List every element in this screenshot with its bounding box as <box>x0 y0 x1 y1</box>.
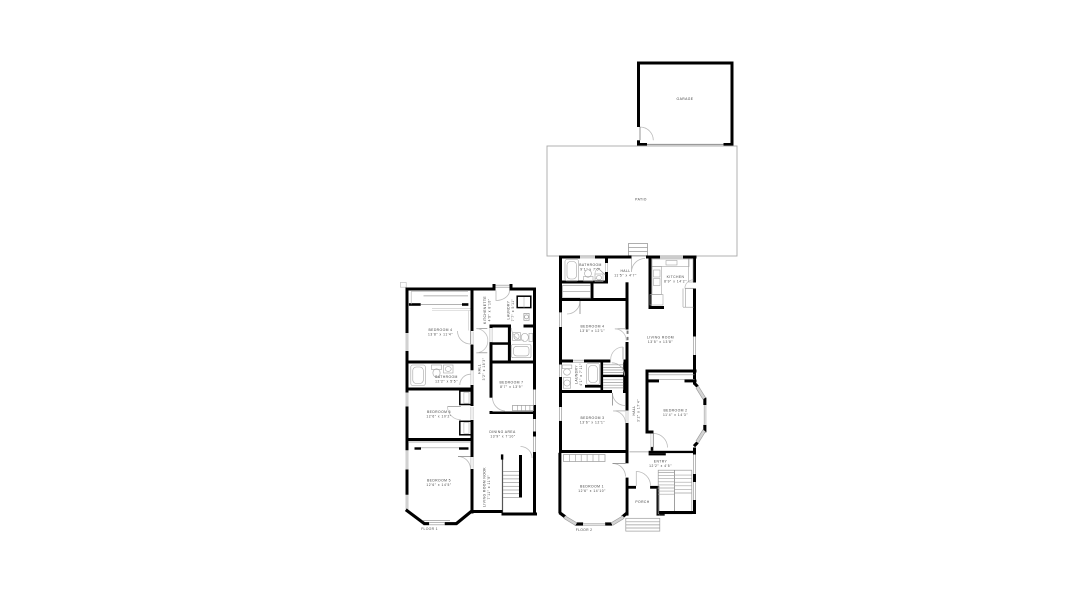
svg-text:BEDROOM 3: BEDROOM 3 <box>581 416 605 420</box>
svg-text:DINING AREA: DINING AREA <box>489 430 516 434</box>
svg-text:FLOOR 2: FLOOR 2 <box>576 528 593 532</box>
svg-text:BATHROOM: BATHROOM <box>579 263 602 267</box>
svg-text:12'6" x 14'10": 12'6" x 14'10" <box>578 489 606 493</box>
svg-text:8'9" x 14'2": 8'9" x 14'2" <box>664 280 687 284</box>
svg-text:13'8" x 11'4": 13'8" x 11'4" <box>428 333 453 337</box>
svg-text:BEDROOM 7: BEDROOM 7 <box>500 381 524 385</box>
svg-text:ENTRY: ENTRY <box>654 460 668 464</box>
svg-text:BATHROOM: BATHROOM <box>435 375 458 379</box>
svg-text:13'8" x 12'1": 13'8" x 12'1" <box>580 329 606 333</box>
svg-text:12'6" x 10'2": 12'6" x 10'2" <box>426 415 452 419</box>
svg-text:LIVING ROOM: LIVING ROOM <box>647 336 674 340</box>
svg-text:11'4" x 14'3": 11'4" x 14'3" <box>663 413 688 417</box>
svg-text:11'5" x 4'7": 11'5" x 4'7" <box>614 274 637 278</box>
svg-text:13'6" x 12'1": 13'6" x 12'1" <box>580 421 606 425</box>
svg-text:8'7" x 13'9": 8'7" x 13'9" <box>500 385 523 389</box>
svg-text:BEDROOM 2: BEDROOM 2 <box>664 409 688 413</box>
svg-text:13'5" x 13'8": 13'5" x 13'8" <box>648 340 674 344</box>
svg-text:4'0" x 8'10": 4'0" x 8'10" <box>488 298 492 321</box>
svg-text:KITCHEN: KITCHEN <box>667 275 685 279</box>
svg-text:3'2" x 17'4": 3'2" x 17'4" <box>637 399 641 422</box>
svg-text:LAUNDRY: LAUNDRY <box>575 365 579 384</box>
svg-text:LIVING ROOM NOOK: LIVING ROOM NOOK <box>483 467 487 507</box>
svg-text:12'2" x 4'5": 12'2" x 4'5" <box>649 464 672 468</box>
svg-text:BEDROOM 1: BEDROOM 1 <box>580 485 604 489</box>
svg-text:HALL: HALL <box>620 269 630 273</box>
svg-text:9'1" x 7'0": 9'1" x 7'0" <box>580 268 601 272</box>
svg-text:PATIO: PATIO <box>635 198 647 202</box>
svg-text:12'2" x 5'5": 12'2" x 5'5" <box>435 380 458 384</box>
svg-text:13'9" x 7'10": 13'9" x 7'10" <box>490 435 516 439</box>
svg-text:4'1" x 7'11": 4'1" x 7'11" <box>579 363 583 386</box>
svg-text:BEDROOM 4: BEDROOM 4 <box>429 328 453 332</box>
svg-text:12'6" x 14'5": 12'6" x 14'5" <box>426 483 452 487</box>
svg-text:7'11" x 11'9": 7'11" x 11'9" <box>487 474 491 499</box>
svg-text:BEDROOM 6: BEDROOM 6 <box>427 410 451 414</box>
svg-text:3'2" x 18'3": 3'2" x 18'3" <box>482 357 486 380</box>
svg-text:KITCHENETTE: KITCHENETTE <box>483 296 487 324</box>
svg-text:LAUNDRY: LAUNDRY <box>507 300 511 319</box>
svg-text:PORCH: PORCH <box>635 500 649 504</box>
svg-text:BEDROOM 4: BEDROOM 4 <box>581 325 605 329</box>
svg-text:FLOOR 1: FLOOR 1 <box>421 527 438 531</box>
svg-text:GARAGE: GARAGE <box>677 97 694 101</box>
svg-text:7'7" x 5'11": 7'7" x 5'11" <box>511 298 515 321</box>
svg-text:HALL: HALL <box>632 405 636 415</box>
svg-text:HALL: HALL <box>478 364 482 374</box>
svg-text:BEDROOM 5: BEDROOM 5 <box>427 479 451 483</box>
